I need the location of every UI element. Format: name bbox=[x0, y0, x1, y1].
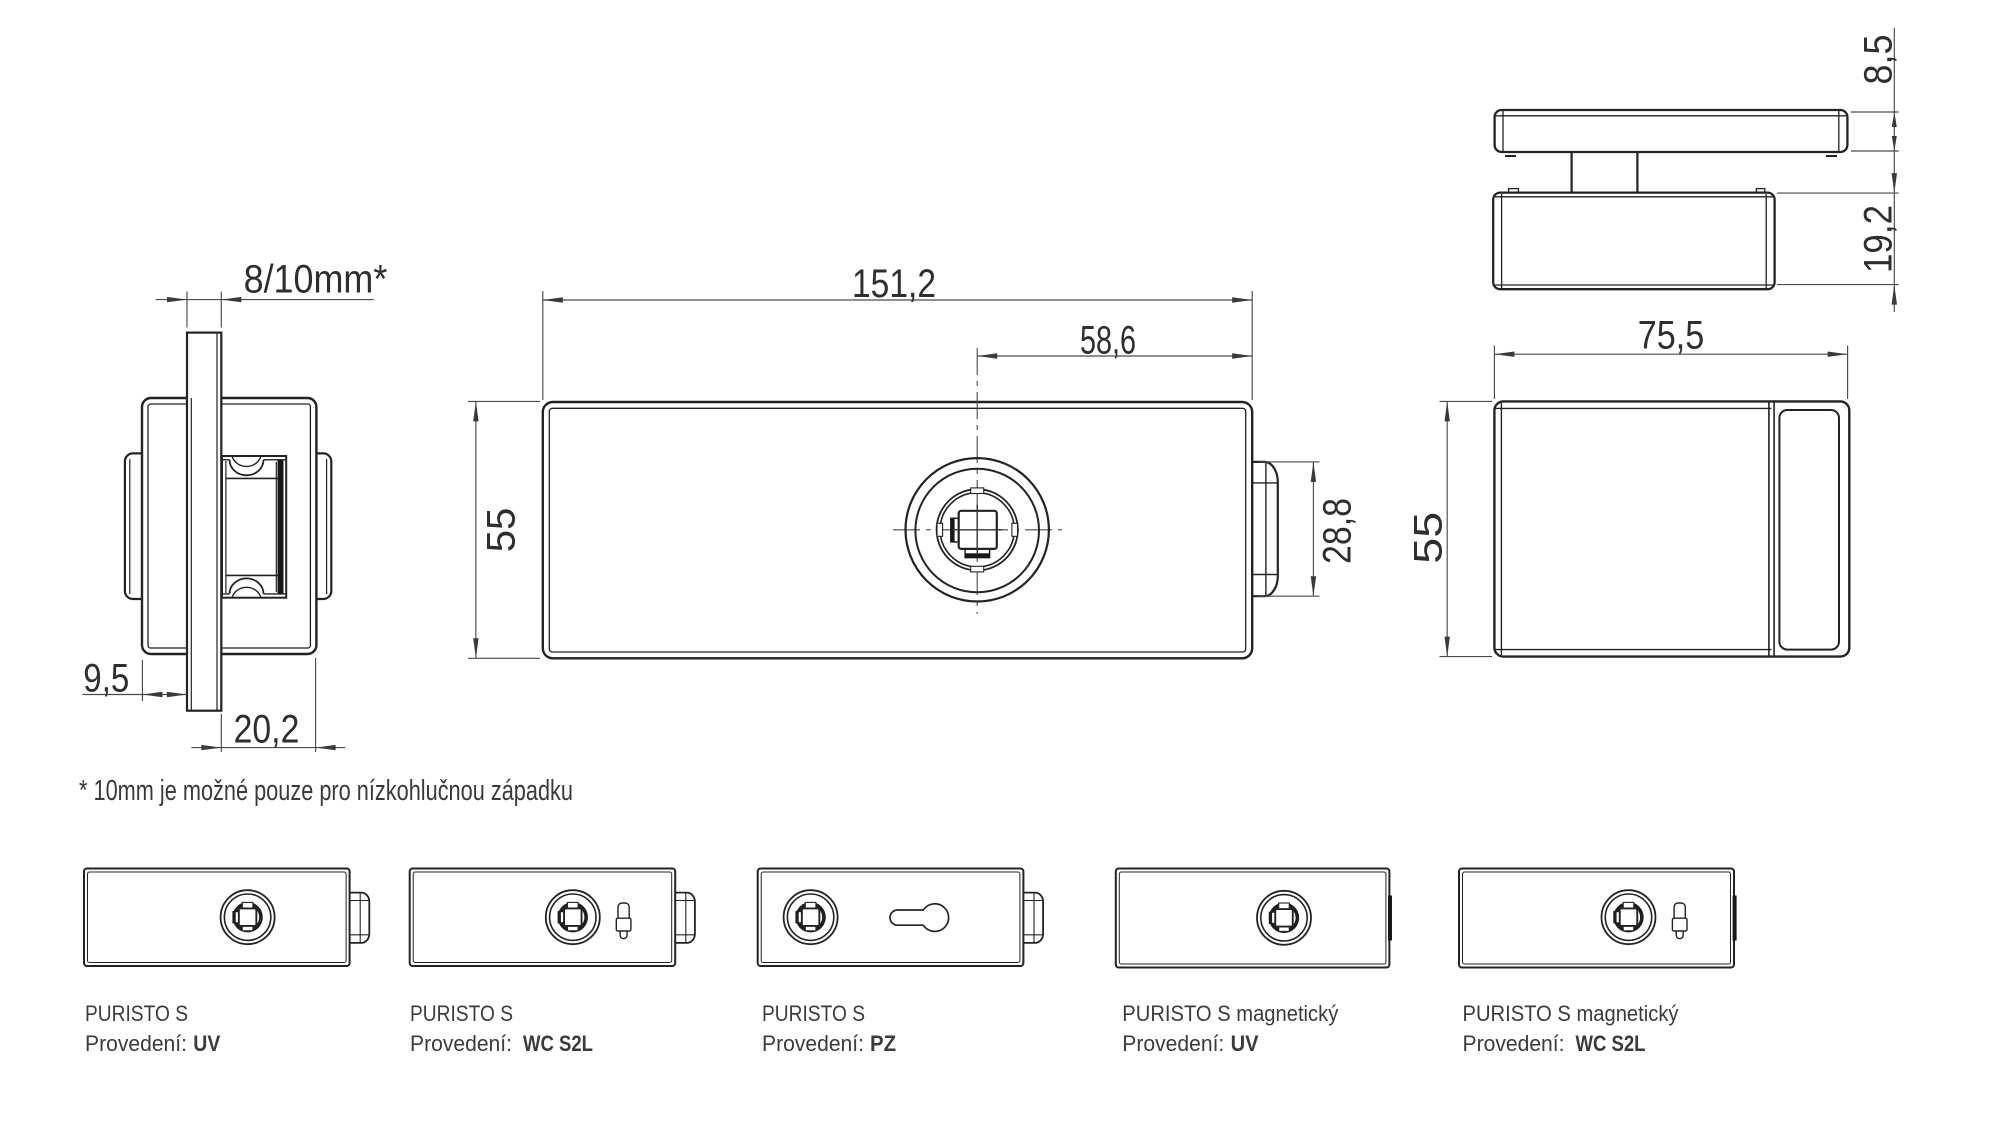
svg-text:PURISTO S: PURISTO S bbox=[410, 1001, 513, 1026]
svg-text:55: 55 bbox=[1407, 512, 1451, 564]
svg-text:9,5: 9,5 bbox=[83, 657, 129, 701]
svg-text:19,2: 19,2 bbox=[1857, 205, 1901, 273]
svg-text:58,6: 58,6 bbox=[1080, 319, 1136, 363]
svg-text:PURISTO S: PURISTO S bbox=[762, 1001, 865, 1026]
svg-text:Provedení:: Provedení: bbox=[1122, 1031, 1224, 1056]
svg-text:55: 55 bbox=[480, 508, 524, 553]
svg-text:PURISTO S: PURISTO S bbox=[85, 1001, 188, 1026]
svg-text:PZ: PZ bbox=[870, 1031, 896, 1056]
svg-text:8,5: 8,5 bbox=[1857, 35, 1901, 85]
svg-text:PURISTO S magnetický: PURISTO S magnetický bbox=[1122, 1001, 1339, 1026]
svg-text:WC S2L: WC S2L bbox=[1576, 1031, 1646, 1056]
svg-text:WC S2L: WC S2L bbox=[523, 1031, 593, 1056]
svg-text:Provedení:: Provedení: bbox=[85, 1031, 187, 1056]
svg-text:Provedení:: Provedení: bbox=[762, 1031, 864, 1056]
svg-text:151,2: 151,2 bbox=[852, 262, 936, 306]
svg-text:Provedení:: Provedení: bbox=[410, 1031, 512, 1056]
svg-text:8/10mm*: 8/10mm* bbox=[244, 258, 388, 302]
svg-text:PURISTO S magnetický: PURISTO S magnetický bbox=[1463, 1001, 1680, 1026]
svg-text:UV: UV bbox=[1231, 1031, 1259, 1056]
svg-text:75,5: 75,5 bbox=[1638, 314, 1704, 358]
svg-text:20,2: 20,2 bbox=[234, 708, 300, 752]
svg-text:Provedení:: Provedení: bbox=[1463, 1031, 1565, 1056]
svg-text:UV: UV bbox=[193, 1031, 220, 1056]
svg-text:28,8: 28,8 bbox=[1316, 498, 1360, 564]
svg-text:* 10mm je možné pouze pro nízk: * 10mm je možné pouze pro nízkohlučnou z… bbox=[79, 775, 573, 807]
